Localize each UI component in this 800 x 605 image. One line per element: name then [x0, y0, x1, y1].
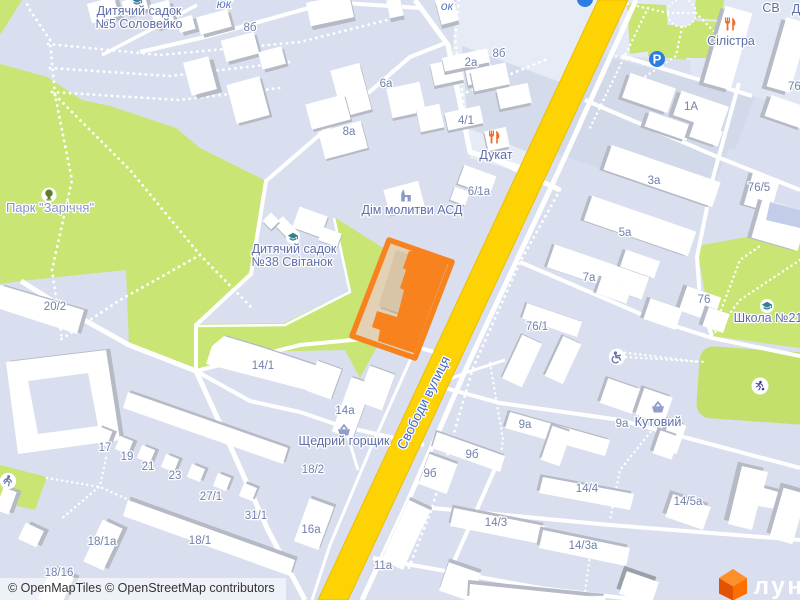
svg-text:76/1: 76/1	[526, 321, 548, 333]
svg-text:Сілістра: Сілістра	[707, 34, 755, 48]
svg-text:Д: Д	[792, 2, 800, 16]
svg-text:18/1а: 18/1а	[88, 536, 117, 548]
svg-text:Кутовий: Кутовий	[635, 415, 682, 429]
svg-text:3а: 3а	[648, 175, 661, 187]
svg-text:21: 21	[142, 461, 155, 473]
svg-text:9б: 9б	[424, 468, 437, 480]
svg-text:© OpenMapTiles © OpenStreetMap: © OpenMapTiles © OpenStreetMap contribut…	[8, 581, 275, 595]
svg-text:18/1: 18/1	[189, 535, 211, 547]
svg-text:Парк "Заріччя": Парк "Заріччя"	[6, 200, 95, 215]
svg-text:СВ: СВ	[762, 1, 779, 15]
svg-text:ок: ок	[441, 0, 455, 13]
svg-text:лун: лун	[754, 573, 800, 600]
svg-text:18/2: 18/2	[302, 464, 324, 476]
svg-text:14/3а: 14/3а	[569, 540, 598, 552]
svg-text:11а: 11а	[374, 560, 393, 572]
svg-text:6/1а: 6/1а	[468, 186, 491, 198]
svg-text:1А: 1А	[684, 101, 698, 113]
svg-text:8б: 8б	[493, 48, 506, 60]
svg-text:4/1: 4/1	[458, 115, 474, 127]
svg-text:Дитячий садок: Дитячий садок	[97, 4, 182, 18]
svg-text:Щедрий горщик: Щедрий горщик	[298, 434, 390, 448]
svg-text:6а: 6а	[380, 78, 393, 90]
svg-text:19: 19	[121, 451, 134, 463]
svg-text:14а: 14а	[335, 405, 355, 417]
svg-text:2а: 2а	[465, 57, 478, 69]
svg-text:76/5: 76/5	[748, 182, 770, 194]
svg-text:23: 23	[169, 470, 182, 482]
svg-text:17: 17	[99, 442, 112, 454]
svg-text:76: 76	[698, 294, 711, 306]
svg-text:5а: 5а	[619, 227, 632, 239]
svg-text:№38 Світанок: №38 Світанок	[251, 255, 333, 269]
svg-text:Дукат: Дукат	[479, 148, 512, 162]
svg-text:14/3: 14/3	[485, 517, 507, 529]
svg-text:7а: 7а	[583, 272, 596, 284]
svg-text:16а: 16а	[301, 524, 321, 536]
svg-text:14/5а: 14/5а	[674, 496, 703, 508]
svg-text:№5 Соловейко: №5 Соловейко	[96, 17, 183, 31]
svg-text:27/1: 27/1	[200, 491, 222, 503]
svg-text:8а: 8а	[343, 126, 356, 138]
svg-text:14/4: 14/4	[576, 483, 599, 495]
svg-text:9а: 9а	[519, 419, 532, 431]
svg-text:31/1: 31/1	[245, 510, 267, 522]
svg-text:9а: 9а	[616, 418, 629, 430]
svg-text:76,: 76,	[788, 81, 800, 93]
svg-text:18/16: 18/16	[45, 567, 74, 579]
svg-text:9б: 9б	[466, 449, 479, 461]
svg-text:14/1: 14/1	[252, 360, 274, 372]
svg-text:юк: юк	[217, 0, 233, 11]
svg-text:8б: 8б	[244, 22, 257, 34]
svg-text:Дитячий садок: Дитячий садок	[252, 242, 337, 256]
svg-text:P: P	[653, 52, 662, 67]
svg-text:Школа №21: Школа №21	[734, 311, 800, 325]
svg-text:Дім молитви АСД: Дім молитви АСД	[362, 203, 463, 217]
svg-text:20/2: 20/2	[44, 301, 66, 313]
